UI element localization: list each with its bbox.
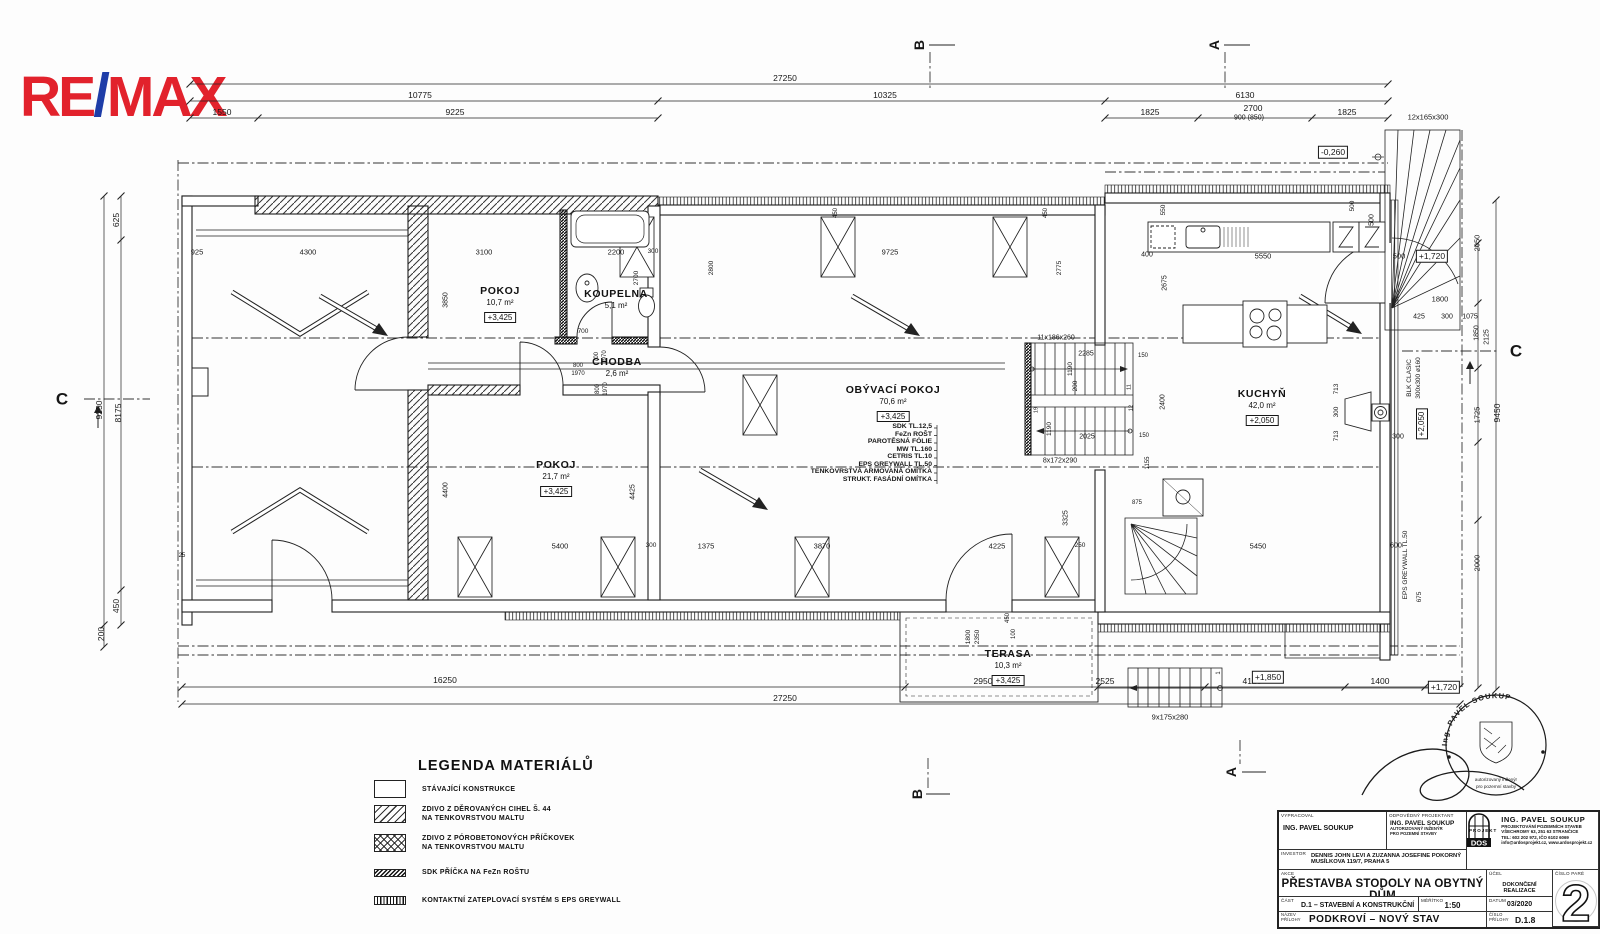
dim-label: 2125 <box>1484 329 1491 345</box>
dim-label: 800 <box>595 384 601 394</box>
dim-label: 27250 <box>773 694 797 703</box>
dim-label: 9225 <box>446 108 465 117</box>
dim-label: 4225 <box>989 542 1006 550</box>
section-marker-a-bottom: A <box>1224 767 1238 777</box>
dim-label: 2675 <box>1162 275 1169 291</box>
pare-number: 2 <box>1562 877 1591 927</box>
dim-label: 500 <box>1393 252 1406 260</box>
dim-label: 875 <box>1132 500 1142 506</box>
room-name: KUCHYŇ <box>1238 388 1287 400</box>
construction-layer: MW TL.160 <box>700 446 932 454</box>
dim-label: 2525 <box>1096 677 1115 686</box>
dim-label: 2700 <box>634 271 641 285</box>
dim-label: 713 <box>1334 384 1341 395</box>
legend-item-aerated-concrete: ZDIVO Z PÓROBETONOVÝCH PŘÍČKOVEKNA TENKO… <box>374 834 575 852</box>
dim-label: 550 <box>1161 205 1168 216</box>
pare-number-graphic: 2 <box>1553 877 1597 927</box>
dim-label: 5450 <box>1250 542 1267 550</box>
dim-label: 1075 <box>1462 314 1478 321</box>
room-level: +3,425 <box>540 486 573 497</box>
dim-label: +1,720 <box>1416 250 1448 263</box>
legend-item-eps: KONTAKTNÍ ZATEPLOVACÍ SYSTÉM S EPS GREYW… <box>374 896 621 905</box>
dim-label: 9250 <box>95 401 104 420</box>
dim-label: 16250 <box>433 676 457 685</box>
dim-label: 11x186x260 <box>1037 335 1075 342</box>
odpovedny-note: PRO POZEMNÍ STAVBY <box>1390 832 1466 837</box>
dim-label: 400 <box>1141 252 1153 259</box>
cell-meritko: MĚŘÍTKO 1:50 <box>1419 897 1487 912</box>
dim-label: +2,050 <box>1416 409 1428 440</box>
legend-item-brick: ZDIVO Z DĚROVANÝCH CIHEL Š. 44NA TENKOVR… <box>374 805 551 823</box>
construction-layers-list: SDK TL.12,5FeZn ROŠTPAROTĚSNÁ FÓLIEMW TL… <box>700 423 932 483</box>
dim-label: 12 <box>1129 405 1135 411</box>
dim-label: 1970 <box>603 382 609 395</box>
legend-label: STÁVAJÍCÍ KONSTRUKCE <box>422 785 515 794</box>
cell-header: ODPOVĚDNÝ PROJEKTANT <box>1389 813 1454 818</box>
dim-label: 300 <box>1441 314 1453 321</box>
dim-label: 10775 <box>408 91 432 100</box>
room-label-pokoj: POKOJ10,7 m²+3,425 <box>480 285 520 325</box>
legend-swatch-sdk <box>374 869 406 877</box>
c-right-arrowhead <box>1466 361 1474 369</box>
dim-label: 3325 <box>1063 510 1070 526</box>
legend-label: NA TENKOVRSTVOU MALTU <box>422 814 551 823</box>
cell-odpovedny-projektant: ODPOVĚDNÝ PROJEKTANT ING. PAVEL SOUKUP A… <box>1387 812 1467 850</box>
dim-label: 1800 <box>1432 295 1449 303</box>
dim-label: 9x175x280 <box>1152 713 1189 721</box>
room-label-obvacpokoj: OBÝVACÍ POKOJ70,6 m²+3,425 <box>846 384 941 424</box>
cell-cislo-prilohy: ČÍSLO PŘÍLOHY D.1.8 <box>1487 912 1553 927</box>
room-area: 10,7 m² <box>480 298 520 307</box>
dim-label: 1825 <box>1141 108 1160 117</box>
room-label-chodba: CHODBA2,6 m² <box>592 356 642 378</box>
dim-label: 4300 <box>300 248 317 256</box>
cell-nazev-prilohy: NÁZEV PŘÍLOHY PODKROVÍ – NOVÝ STAV <box>1279 912 1487 927</box>
room-label-kuchy: KUCHYŇ42,0 m²+2,050 <box>1238 388 1287 428</box>
dim-label: 300 <box>1334 407 1341 418</box>
kitchen-fixtures <box>1148 222 1389 516</box>
stair-middle-arrow-up <box>1120 366 1128 372</box>
dim-label: 1190 <box>1047 422 1054 436</box>
construction-layer: TENKOVRSTVÁ ARMOVANÁ OMÍTKA <box>700 468 932 476</box>
dim-label: 12x165x300 <box>1408 113 1449 121</box>
legend-swatch-brick-hatch <box>374 805 406 823</box>
dim-label: 300x300 ø160 <box>1416 357 1423 399</box>
svg-text:Ing. PAVEL SOUKUP: Ing. PAVEL SOUKUP <box>1440 691 1512 746</box>
cell-header: VYPRACOVAL <box>1281 813 1314 818</box>
stamp-line2: pro pozemní stavby <box>1476 784 1517 789</box>
dim-label: 8x172x290 <box>1043 458 1077 465</box>
cell-datum: DATUM 03/2020 <box>1487 897 1553 912</box>
room-name: KOUPELNA <box>584 288 648 300</box>
dim-label: 1 <box>1216 671 1222 674</box>
rafter-symbols <box>458 217 1079 597</box>
dim-label: -0,260 <box>1318 146 1348 159</box>
dim-label: 2350 <box>975 630 982 644</box>
dim-label: 675 <box>1417 592 1424 603</box>
room-area: 21,7 m² <box>536 472 576 481</box>
room-label-koupelna: KOUPELNA5,1 m² <box>584 288 648 310</box>
collar-beam <box>428 363 1005 369</box>
dim-label: 11 <box>1127 384 1133 390</box>
dim-label: 9450 <box>1493 404 1502 423</box>
dim-label: 1825 <box>1338 108 1357 117</box>
sheet-name: PODKROVÍ – NOVÝ STAV <box>1309 914 1486 925</box>
construction-layer: PAROTĚSNÁ FÓLIE <box>700 438 932 446</box>
room-area: 42,0 m² <box>1238 401 1287 410</box>
dim-label: 4425 <box>630 484 637 500</box>
dim-label: 3100 <box>476 248 493 256</box>
cell-investor: INVESTOR DENNIS JOHN LEVI A ZUZANNA JOSE… <box>1279 850 1467 870</box>
dos-logo-text: DOS <box>1471 839 1487 848</box>
legend-title: LEGENDA MATERIÁLŮ <box>418 758 594 774</box>
dim-label: 100 <box>1011 629 1017 639</box>
dim-label: 1400 <box>1371 677 1390 686</box>
cell-header: DATUM <box>1489 898 1506 903</box>
dim-label: 300 <box>1392 434 1404 441</box>
barn-braces-inner <box>232 292 368 532</box>
dim-label: 250 <box>1075 543 1086 550</box>
engineer-stamp: Ing. PAVEL SOUKUP autorizovaný inženýr p… <box>1440 691 1546 795</box>
legend-label: KONTAKTNÍ ZATEPLOVACÍ SYSTÉM S EPS GREYW… <box>422 896 621 905</box>
cell-vypracoval: VYPRACOVAL ING. PAVEL SOUKUP <box>1279 812 1387 850</box>
dim-label: 1800 <box>966 630 973 644</box>
dim-label: 10325 <box>873 91 897 100</box>
dim-label: 3870 <box>814 542 831 550</box>
barn-braces <box>232 292 368 532</box>
dim-label: 1970 <box>571 371 584 377</box>
room-name: CHODBA <box>592 356 642 368</box>
dim-label: 1190 <box>1068 362 1075 376</box>
vypracoval-value: ING. PAVEL SOUKUP <box>1283 825 1386 832</box>
room-level: +3,425 <box>877 411 910 422</box>
dim-label: 5400 <box>552 542 569 550</box>
construction-layer: STRUKT. FASÁDNÍ OMÍTKA <box>700 476 932 484</box>
dim-label: EPS GREYWALL TL.50 <box>1403 531 1410 600</box>
dim-label: 450 <box>1005 613 1011 623</box>
cell-dos-projekt: DOS PROJEKT ING. PAVEL SOUKUP PROJEKTOVÁ… <box>1467 812 1599 870</box>
dim-label: 2200 <box>608 248 625 256</box>
dim-label: 800 <box>573 363 583 369</box>
construction-layer: EPS GREYWALL TL.50 <box>700 461 932 469</box>
dim-label: +1,850 <box>1252 671 1284 684</box>
dim-label: 450 <box>833 208 839 218</box>
cell-header: ČÍSLO PARÉ <box>1555 871 1584 876</box>
legend-item-sdk: SDK PŘÍČKA NA FeZn ROŠTU <box>374 868 529 877</box>
dim-label: 2000 <box>1473 555 1481 572</box>
cell-ucel: ÚČEL DOKONČENÍ REALIZACE <box>1487 870 1553 897</box>
legend-label: ZDIVO Z PÓROBETONOVÝCH PŘÍČKOVEK <box>422 834 575 843</box>
materials-legend: LEGENDA MATERIÁLŮ STÁVAJÍCÍ KONSTRUKCE Z… <box>374 758 714 928</box>
dim-label: 1550 <box>213 108 232 117</box>
dim-label: 500 <box>1369 214 1376 226</box>
room-level: +3,425 <box>992 675 1025 686</box>
dim-label: 900 (850) <box>1234 115 1264 122</box>
stair-bottom-arrow <box>1129 685 1137 691</box>
signature <box>1362 749 1524 800</box>
construction-layer: CETRIS TL.10 <box>700 453 932 461</box>
dim-label: 450 <box>1043 208 1049 218</box>
legend-swatch-cross-hatch <box>374 834 406 852</box>
dos-company-name: ING. PAVEL SOUKUP <box>1501 815 1592 824</box>
dim-label: 300 <box>648 249 659 256</box>
ucel-value: DOKONČENÍ REALIZACE <box>1487 882 1552 894</box>
dim-label: 200 <box>97 627 106 641</box>
cell-cislo-pare: ČÍSLO PARÉ 2 <box>1553 870 1599 927</box>
room-area: 70,6 m² <box>846 397 941 406</box>
cell-header: PŘÍLOHY <box>1281 918 1301 923</box>
dim-label: 625 <box>112 213 121 227</box>
dim-label: 300 <box>646 543 657 550</box>
room-area: 10,3 m² <box>985 661 1032 670</box>
dim-label: 500 <box>1350 201 1357 212</box>
cell-header: MĚŘÍTKO <box>1421 898 1443 903</box>
dim-label: 19 <box>1034 407 1040 413</box>
dim-label: +1,720 <box>1428 681 1460 694</box>
legend-label: SDK PŘÍČKA NA FeZn ROŠTU <box>422 868 529 877</box>
section-marker-b-top: B <box>912 40 926 50</box>
room-label-pokoj: POKOJ21,7 m²+3,425 <box>536 459 576 499</box>
legend-label: ZDIVO Z DĚROVANÝCH CIHEL Š. 44 <box>422 805 551 814</box>
stair-middle-arrow-down <box>1036 428 1044 434</box>
cell-cast: ČÁST D.1 – STAVEBNÍ A KONSTRUKČNÍ <box>1279 897 1419 912</box>
room-level: +2,050 <box>1246 415 1279 426</box>
room-level: +3,425 <box>484 312 517 323</box>
dim-label: 5550 <box>1255 252 1272 260</box>
dim-label: 2400 <box>1160 394 1167 410</box>
dim-label: 1375 <box>698 542 715 550</box>
dim-label: 25 <box>179 553 186 559</box>
section-marker-a-top: A <box>1207 40 1221 50</box>
stair-bottom <box>1128 668 1223 707</box>
dim-label: 2775 <box>1057 261 1064 275</box>
dim-label: 2700 <box>1244 104 1263 113</box>
cell-akce: AKCE PŘESTAVBA STODOLY NA OBYTNÝ DŮM KOS… <box>1279 870 1487 897</box>
legend-item-existing: STÁVAJÍCÍ KONSTRUKCE <box>374 780 515 798</box>
dim-label: 2800 <box>709 261 716 275</box>
dim-label: 6130 <box>1236 91 1255 100</box>
dim-label: 700 <box>578 329 589 336</box>
stamp-arc-text: Ing. PAVEL SOUKUP <box>1440 691 1512 746</box>
dos-logo-icon: DOS <box>1467 812 1491 850</box>
dim-label: 8175 <box>114 404 123 423</box>
section-marker-c-right: C <box>1510 343 1522 360</box>
dim-label: 1850 <box>1474 325 1481 341</box>
dim-label: BLK CLASIC <box>1407 359 1414 397</box>
dim-label: 425 <box>1413 314 1425 321</box>
dim-label: 3850 <box>443 292 450 308</box>
cell-header: PŘÍLOHY <box>1489 918 1509 923</box>
dim-label: 27250 <box>773 74 797 83</box>
dim-label: 9725 <box>882 248 899 256</box>
cell-header: INVESTOR <box>1281 851 1306 856</box>
cast-value: D.1 – STAVEBNÍ A KONSTRUKČNÍ <box>1301 902 1418 909</box>
dim-label: 4400 <box>443 482 450 498</box>
cell-header: AKCE <box>1281 871 1294 876</box>
room-name: TERASA <box>985 648 1032 660</box>
legend-label: NA TENKOVRSTVOU MALTU <box>422 843 575 852</box>
dim-label: 2285 <box>1078 351 1094 358</box>
floorplan-scan-page: RE/MAX <box>0 0 1600 934</box>
room-name: POKOJ <box>536 459 576 471</box>
dim-label: 200 <box>1073 381 1080 392</box>
construction-layer: SDK TL.12,5 <box>700 423 932 431</box>
dim-label: 1155 <box>1145 457 1151 470</box>
dim-label: 600 <box>1390 543 1402 550</box>
legend-swatch-eps <box>374 896 406 905</box>
dim-label: 713 <box>1334 431 1341 442</box>
dim-label: 150 <box>1139 433 1149 439</box>
dim-label: 1725 <box>1473 407 1481 424</box>
room-name: POKOJ <box>480 285 520 297</box>
cell-header: ÚČEL <box>1489 871 1502 876</box>
cell-header: ČÁST <box>1281 898 1294 903</box>
sheet-number: D.1.8 <box>1515 915 1552 925</box>
dos-contact-line: info@ardosprojekt.cz, www.ardosprojekt.c… <box>1501 840 1592 845</box>
room-area: 5,1 m² <box>584 301 648 310</box>
stair-winder-kitchen <box>1125 518 1197 594</box>
room-area: 2,6 m² <box>592 369 642 378</box>
project-title: PŘESTAVBA STODOLY NA OBYTNÝ DŮM <box>1279 878 1486 897</box>
barn-beams <box>192 230 408 586</box>
dim-label: 2050 <box>1473 235 1481 252</box>
dim-label: 450 <box>112 599 121 613</box>
construction-layer: FeZn ROŠT <box>700 431 932 439</box>
section-marker-c-left: C <box>56 391 68 408</box>
investor-line2: MUSÍLKOVA 119/7, PRAHA 5 <box>1311 859 1466 865</box>
room-name: OBÝVACÍ POKOJ <box>846 384 941 396</box>
dim-label: 925 <box>191 248 204 256</box>
dim-label: 150 <box>1138 353 1148 359</box>
dim-label: 2025 <box>1079 434 1095 441</box>
title-block: VYPRACOVAL ING. PAVEL SOUKUP ODPOVĚDNÝ P… <box>1277 810 1600 929</box>
section-marker-b-bottom: B <box>910 789 924 799</box>
room-label-terasa: TERASA10,3 m²+3,425 <box>985 648 1032 688</box>
legend-swatch-existing <box>374 780 406 798</box>
